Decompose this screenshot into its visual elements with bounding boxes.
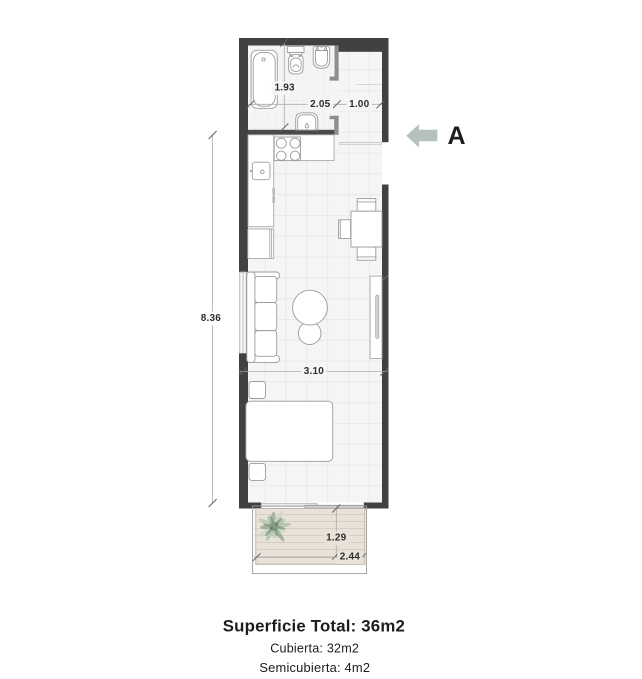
svg-text:Cubierta: 32m2: Cubierta: 32m2 [270,641,359,655]
svg-text:1.93: 1.93 [274,83,295,94]
svg-text:A: A [448,122,466,150]
svg-text:8.36: 8.36 [201,313,222,324]
svg-text:1.00: 1.00 [349,99,370,110]
svg-text:Semicubierta: 4m2: Semicubierta: 4m2 [259,660,370,675]
svg-text:1.29: 1.29 [326,533,347,544]
svg-text:2.44: 2.44 [340,552,361,563]
svg-text:2.05: 2.05 [310,99,331,110]
svg-text:3.10: 3.10 [304,366,325,377]
svg-text:Superficie Total: 36m2: Superficie Total: 36m2 [223,617,405,636]
